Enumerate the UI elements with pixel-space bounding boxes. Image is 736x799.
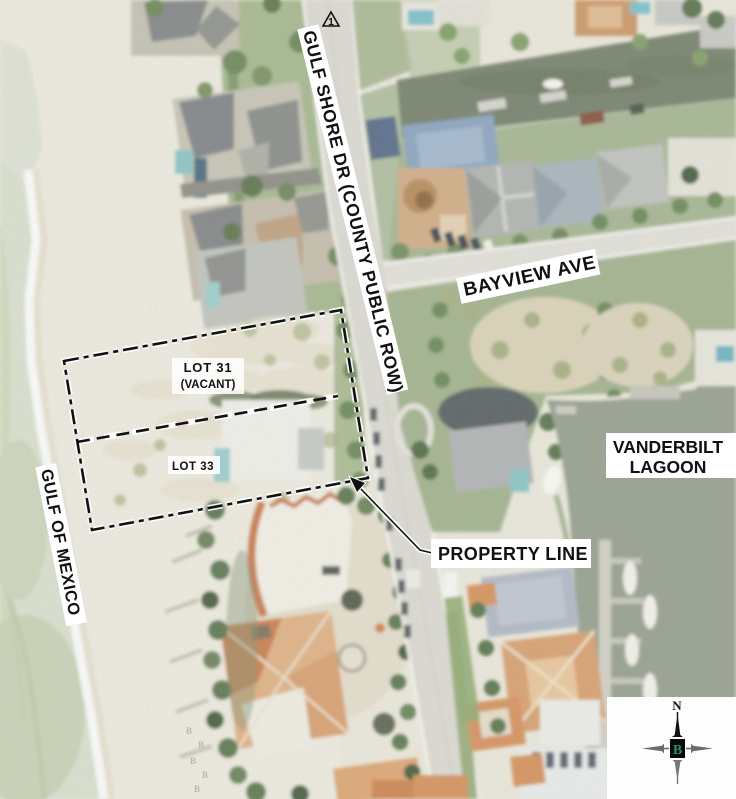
svg-text:PROPERTY LINE: PROPERTY LINE: [438, 544, 588, 564]
svg-text:B: B: [190, 756, 196, 766]
svg-text:B: B: [673, 743, 682, 758]
svg-text:B: B: [194, 784, 200, 794]
svg-text:LOT 33: LOT 33: [172, 461, 214, 473]
svg-text:N: N: [672, 698, 682, 713]
svg-text:(VACANT): (VACANT): [181, 379, 236, 391]
svg-text:B: B: [198, 740, 204, 750]
svg-text:B: B: [186, 726, 192, 736]
svg-text:VANDERBILT: VANDERBILT: [613, 437, 723, 457]
svg-text:LAGOON: LAGOON: [630, 457, 707, 477]
svg-text:LOT 31: LOT 31: [184, 360, 233, 375]
svg-text:B: B: [202, 770, 208, 780]
svg-text:1: 1: [328, 17, 334, 28]
